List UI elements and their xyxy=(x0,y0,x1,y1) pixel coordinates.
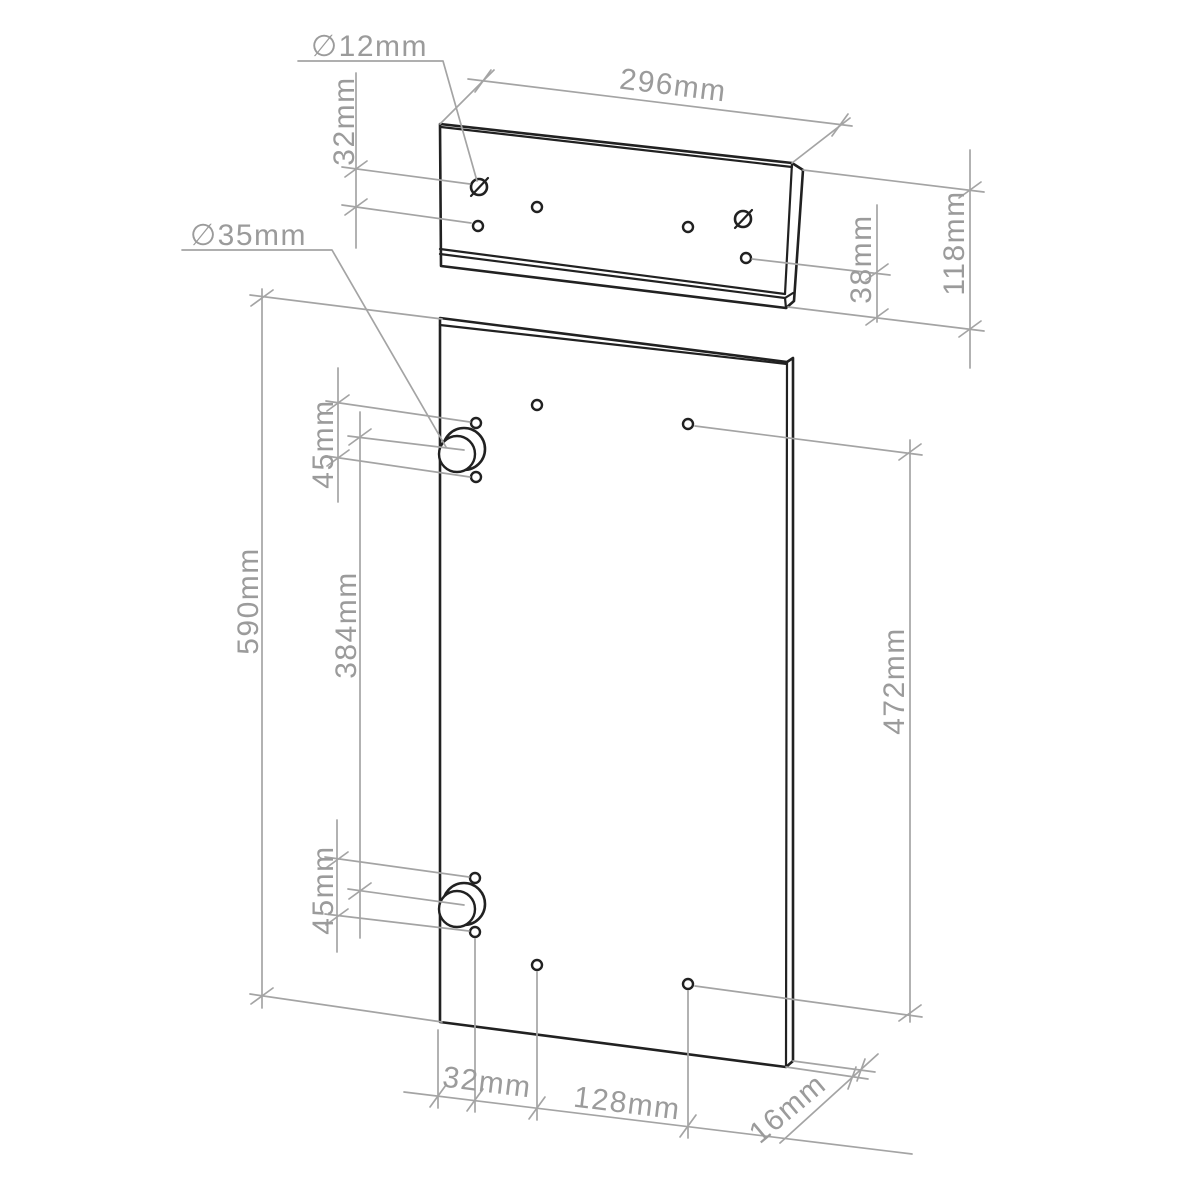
dim-label-drawer-width: 296mm xyxy=(618,63,729,109)
door-hinge-cup-bottom-inner xyxy=(439,891,475,927)
extension-line xyxy=(792,118,850,163)
dim-label-right-holes-spacing: 472mm xyxy=(878,627,911,735)
extension-line xyxy=(250,994,442,1022)
dim-door-right-holes-spacing: 472mm xyxy=(695,426,922,1022)
drawer-front-top-edge-line xyxy=(441,127,792,167)
door-hinge-cup-top-inner xyxy=(439,436,475,472)
extension-line xyxy=(803,170,984,192)
cabinet-parts-drawing: ∅12mm 296mm 32mm 118mm 38mm ∅35mm xyxy=(0,0,1200,1200)
dim-drawer-height: 118mm xyxy=(788,150,984,368)
dim-label-hinge-cup-diameter: ∅35mm xyxy=(190,219,307,252)
extension-line xyxy=(325,857,469,877)
door-hinge-screw-bottom-upper xyxy=(470,873,480,883)
tick-mark xyxy=(848,1067,856,1089)
dim-door-bottom-spacings: 32mm 128mm xyxy=(404,939,912,1154)
extension-line xyxy=(695,426,922,455)
extension-line xyxy=(326,401,470,422)
dim-label-drawer-hole-diameter: ∅12mm xyxy=(311,30,428,63)
extension-line xyxy=(695,986,922,1017)
drawer-pilot-hole-top-center xyxy=(532,202,542,212)
drawer-front-strip-edge xyxy=(785,298,786,308)
door-hole-bottom-center xyxy=(532,960,542,970)
door-hinge-screw-bottom-lower xyxy=(470,927,480,937)
dim-door-thickness: 16mm xyxy=(743,1054,878,1150)
drawer-front-groove-bottom-line xyxy=(440,254,785,298)
drawer-front-right-face-edge xyxy=(785,163,792,294)
dim-label-hinge-spacing: 384mm xyxy=(330,571,363,679)
door-right-face-edge xyxy=(786,363,787,1066)
dim-label-drawer-height: 118mm xyxy=(938,190,971,295)
dim-label-drawer-bottom-hole-offset: 38mm xyxy=(845,214,878,303)
drawer-pilot-hole-left xyxy=(473,221,483,231)
door-hole-top-center xyxy=(532,400,542,410)
drawer-pilot-hole-bottom-right xyxy=(741,253,751,263)
dim-drawer-row-spacing: 32mm xyxy=(328,73,471,248)
door-hinge-screw-top-upper xyxy=(471,418,481,428)
extension-line xyxy=(342,167,470,184)
dim-label-door-thickness: 16mm xyxy=(743,1067,833,1150)
drawer-front-panel xyxy=(440,124,803,308)
door-top-edge-line xyxy=(440,325,787,364)
dim-door-hinge-spacing: 384mm xyxy=(330,412,464,938)
door-hinge-screw-top-lower xyxy=(471,472,481,482)
dim-label-drawer-row-spacing: 32mm xyxy=(328,76,361,165)
dim-label-door-height: 590mm xyxy=(232,547,265,655)
door-silhouette xyxy=(440,318,793,1067)
door-hole-bottom-right xyxy=(683,979,693,989)
door-panel xyxy=(439,318,793,1067)
dim-top-hinge-screw-spacing: 45mm xyxy=(307,368,470,502)
dim-drawer-hole-diameter: ∅12mm xyxy=(298,30,477,181)
drawer-pilot-hole-right-center xyxy=(683,222,693,232)
dim-bottom-hinge-screw-spacing: 45mm xyxy=(307,820,469,952)
leader-line xyxy=(298,61,477,181)
dim-label-top-hinge-screw-spacing: 45mm xyxy=(307,399,340,488)
technical-drawing-canvas: ∅12mm 296mm 32mm 118mm 38mm ∅35mm xyxy=(0,0,1200,1200)
door-hole-top-right xyxy=(683,419,693,429)
extension-line xyxy=(250,295,442,319)
drawer-front-groove-notch xyxy=(785,293,793,298)
dim-label-bottom-holes-spacing: 128mm xyxy=(572,1081,683,1127)
dim-label-bottom-hinge-screw-spacing: 45mm xyxy=(307,845,340,934)
extension-line xyxy=(342,205,471,223)
